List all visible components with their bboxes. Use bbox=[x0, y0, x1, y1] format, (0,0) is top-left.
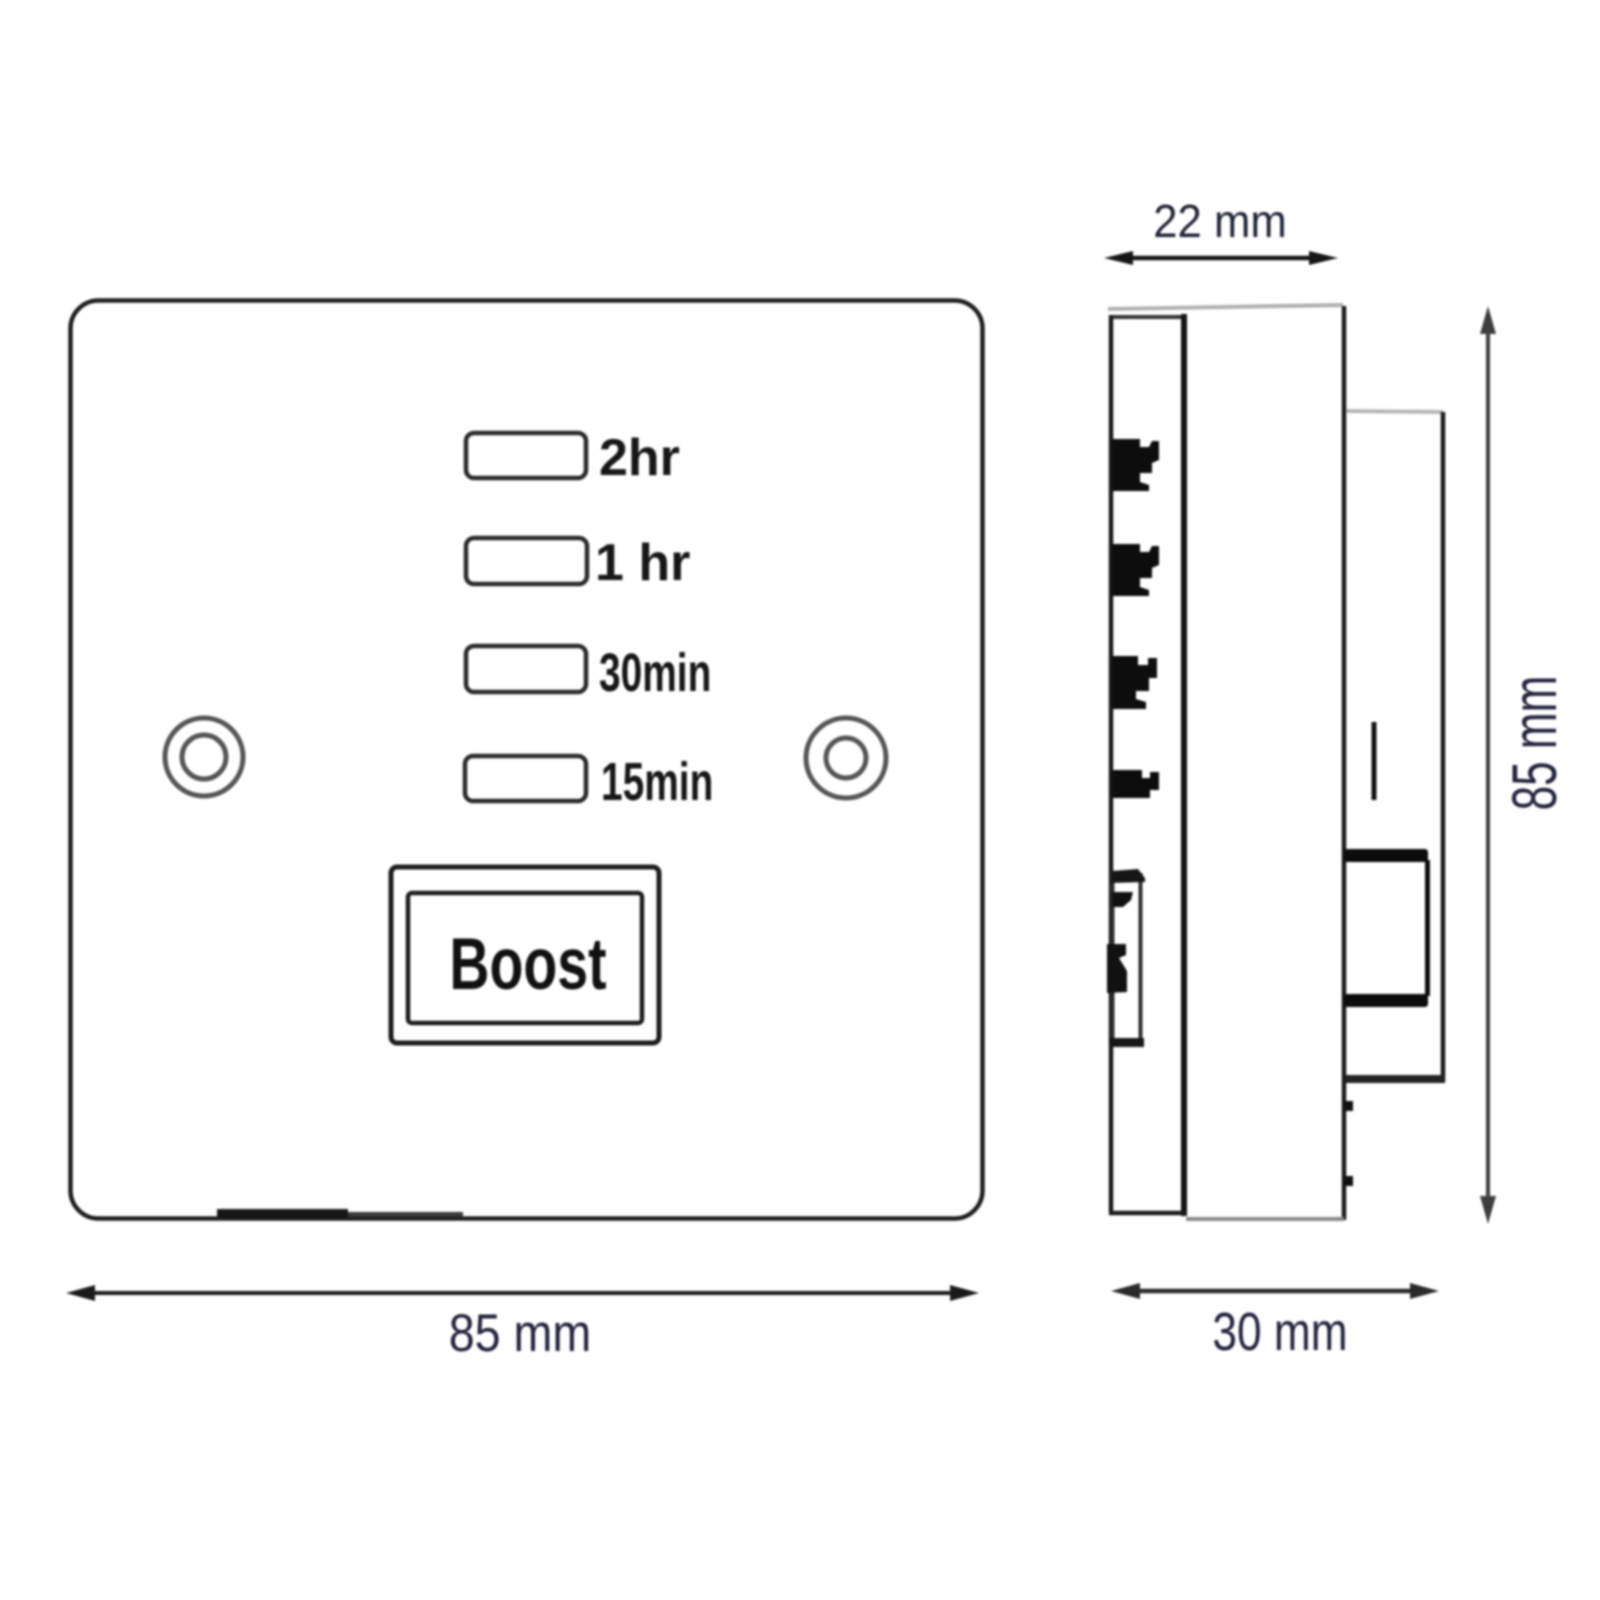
svg-text:15min: 15min bbox=[601, 751, 713, 812]
svg-text:22 mm: 22 mm bbox=[1153, 195, 1287, 247]
svg-text:2hr: 2hr bbox=[599, 429, 680, 487]
svg-text:85 mm: 85 mm bbox=[1499, 676, 1570, 811]
svg-text:1 hr: 1 hr bbox=[595, 534, 690, 592]
svg-text:85 mm: 85 mm bbox=[449, 1303, 592, 1362]
svg-text:Boost: Boost bbox=[449, 923, 606, 1005]
svg-text:30min: 30min bbox=[599, 642, 711, 703]
svg-text:30 mm: 30 mm bbox=[1212, 1302, 1347, 1362]
